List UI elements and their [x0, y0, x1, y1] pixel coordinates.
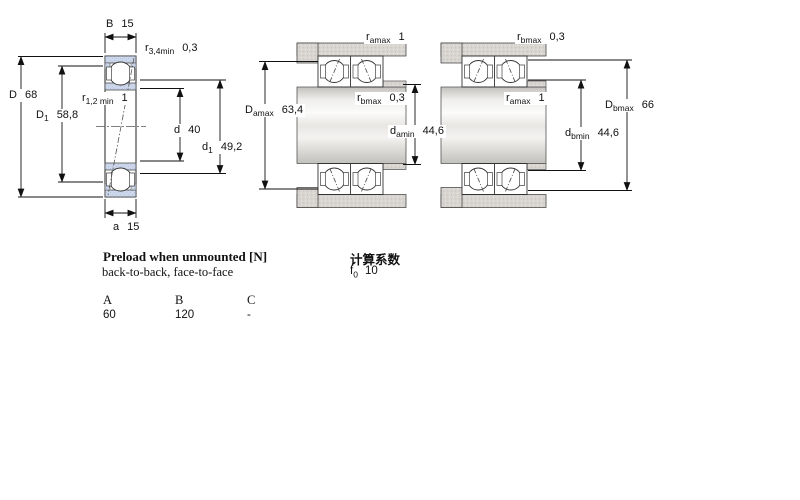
preload-header-C: C [247, 293, 319, 308]
preload-class-table: A B C 60 120 - [103, 293, 319, 321]
fig3-mounted-pair [441, 43, 632, 208]
bearing-datasheet-diagram: B15 r3,4min0,3 D68 D158,8 r1,2 min1 d40 … [0, 0, 800, 500]
dim-label-d: d40 [172, 124, 202, 137]
dim-label-Dbmax: Dbmax66 [603, 99, 656, 112]
dim-label-B: B15 [104, 18, 136, 31]
dim-label-dbmin: dbmin44,6 [563, 127, 621, 140]
dim-label-r12min: r1,2 min1 [80, 92, 130, 105]
preload-subtitle: back-to-back, face-to-face [102, 265, 233, 280]
dim-label-damin: damin44,6 [388, 125, 446, 138]
dim-label-a: a15 [111, 221, 141, 234]
preload-table-value-row: 60 120 - [103, 308, 319, 321]
preload-table-header-row: A B C [103, 293, 319, 308]
dim-label-r34min: r3,4min0,3 [143, 42, 199, 55]
preload-header-B: B [175, 293, 247, 308]
preload-title: Preload when unmounted [N] [103, 249, 267, 265]
preload-header-A: A [103, 293, 175, 308]
dim-label-rbmax-fig3: rbmax0,3 [515, 31, 567, 44]
dim-label-ramax-fig3: ramax1 [504, 92, 547, 105]
dim-label-ramax-fig2: ramax1 [364, 31, 407, 44]
preload-value-A: 60 [103, 308, 175, 321]
dim-label-Damax: Damax63,4 [243, 104, 305, 117]
preload-value-B: 120 [175, 308, 247, 321]
dim-label-D1: D158,8 [34, 109, 80, 122]
dim-label-d1: d149,2 [200, 141, 244, 154]
dim-label-D: D68 [7, 89, 39, 102]
preload-value-C: - [247, 308, 319, 321]
calculation-factor-f0: f010 [350, 265, 378, 279]
dim-label-rbmax-fig2: rbmax0,3 [355, 92, 407, 105]
